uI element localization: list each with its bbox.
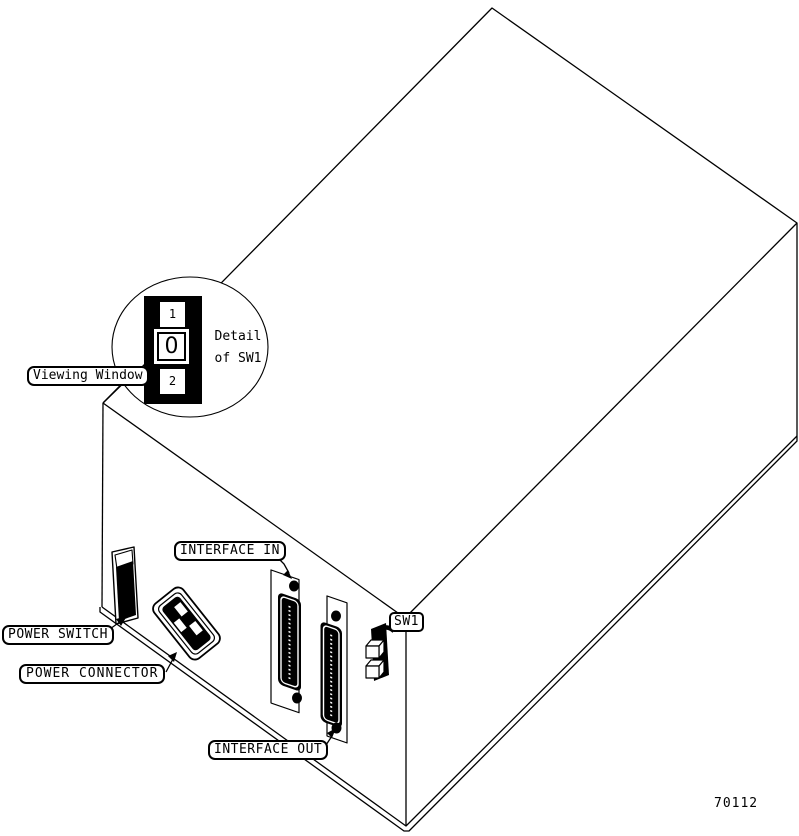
callout-power-switch: POWER SWITCH: [2, 625, 114, 645]
sw1-detail-position-1-window: 1: [160, 302, 185, 327]
power-switch-rocker: [116, 561, 136, 621]
sw1-detail-position-0-value: 0: [157, 332, 186, 361]
power-connector-graphic: [150, 585, 223, 663]
box-rear-top-edge: [103, 403, 405, 618]
sw1-button2-front: [366, 666, 379, 678]
detail-title-line2: of SW1: [208, 352, 268, 366]
interface-in-screw-top: [289, 581, 299, 592]
box-rear-left-edge: [102, 403, 103, 607]
callout-sw1: SW1: [389, 612, 424, 632]
interface-in-connector: [271, 570, 302, 713]
sw1-switch-graphic: [366, 623, 394, 681]
interface-out-connector: [321, 596, 348, 743]
figure-canvas: 1 0 2 Detail of SW1 Viewing Window POWER…: [0, 0, 799, 836]
interface-in-screw-bottom: [292, 693, 302, 704]
callout-interface-out: INTERFACE OUT: [208, 740, 328, 760]
power-switch-graphic: [112, 547, 138, 624]
device-box-edges: [100, 8, 797, 831]
callout-viewing-window: Viewing Window: [27, 366, 149, 386]
detail-title: Detail of SW1: [208, 330, 268, 366]
sw1-button-front: [366, 646, 379, 658]
callout-interface-in: INTERFACE IN: [174, 541, 286, 561]
detail-title-line1: Detail: [208, 330, 268, 344]
sw1-detail-position-2-window: 2: [160, 369, 185, 394]
box-front-top-edge: [405, 223, 797, 618]
sw1-detail-viewing-window: 0: [154, 329, 189, 364]
figure-number: 70112: [714, 797, 758, 811]
interface-out-screw-top: [331, 611, 341, 622]
callout-power-connector: POWER CONNECTOR: [19, 664, 165, 684]
diagram-line-art: [0, 0, 799, 836]
